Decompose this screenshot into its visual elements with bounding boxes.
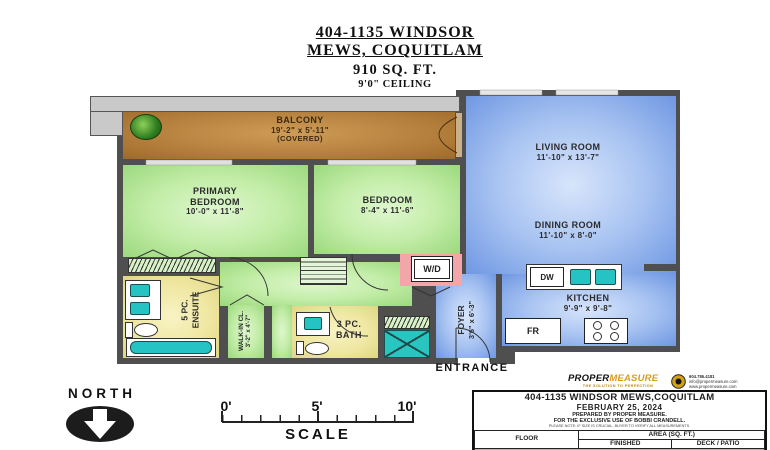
- primary-bedroom-name2: BEDROOM: [150, 197, 280, 208]
- scale-major-tick: [221, 411, 223, 422]
- bath-name-line2: BATH: [318, 330, 380, 341]
- bath-toilet-tank: [296, 341, 304, 355]
- ensuite-toilet-tank: [125, 322, 133, 338]
- walkin-closet-name: WALK-IN CL.: [238, 311, 246, 351]
- stove-burner: [610, 332, 619, 341]
- stove-burner: [610, 321, 619, 330]
- table-header-row: FLOOR AREA (SQ. FT.): [475, 430, 765, 439]
- title-address-line1: 404-1135 WINDSOR: [255, 24, 535, 42]
- living-room-name: LIVING ROOM: [478, 142, 658, 153]
- foyer-closet-bifold: [384, 330, 430, 358]
- scale-major-tick: [412, 411, 414, 422]
- compass-label: NORTH: [60, 386, 144, 401]
- kitchen-name: KITCHEN: [528, 293, 648, 304]
- ensuite-name-line2: ENSUITE: [190, 292, 201, 329]
- wall-stub-dining: [644, 264, 676, 271]
- logo-badge-icon: [671, 374, 686, 389]
- ensuite-name-line1: 5 PC.: [179, 292, 190, 329]
- room-hall-alcove: [272, 305, 292, 358]
- infobox-title: 404-1135 WINDSOR MEWS,COQUITLAM: [474, 392, 765, 403]
- logo-tagline: THE SOLUTION TO PERFECTION: [568, 384, 668, 388]
- primary-closet-hangers: [128, 258, 216, 273]
- scale-major-tick: [317, 411, 319, 422]
- plant-icon: [130, 114, 162, 140]
- title-ceiling: 9'0" CEILING: [255, 79, 535, 90]
- bath-label: 3 PC. BATH: [318, 319, 380, 340]
- kitchen-label: KITCHEN 9'-9" x 9'-8": [528, 293, 648, 313]
- balcony-name: BALCONY: [210, 115, 390, 126]
- infobox-date: FEBRUARY 25, 2024: [474, 403, 765, 412]
- logo-contact-block: 604.786.4181 info@propermeasure.com www.…: [689, 374, 737, 390]
- bath-toilet-bowl: [305, 342, 329, 355]
- infobox-disclaimer: PLEASE NOTE: IF SIZE IS CRUCIAL, BUYER T…: [474, 424, 765, 429]
- fridge-label: FR: [527, 326, 539, 336]
- bedroom-label: BEDROOM 8'-4" x 11'-6": [320, 195, 455, 215]
- foyer-closet-hangers: [384, 316, 430, 329]
- entrance-label: ENTRANCE: [420, 362, 524, 374]
- col-finished: FINISHED: [579, 439, 672, 448]
- dining-room-name: DINING ROOM: [478, 220, 658, 231]
- ensuite-toilet-bowl: [134, 323, 158, 337]
- stove: [584, 318, 628, 344]
- bedroom-name: BEDROOM: [320, 195, 455, 206]
- dining-room-dims: 11'-10" x 8'-0": [478, 231, 658, 240]
- primary-bedroom-dims: 10'-0" x 11'-8": [150, 207, 280, 216]
- stove-burner: [593, 321, 602, 330]
- linen-closet-shelves: [300, 257, 347, 285]
- bedroom-dims: 8'-4" x 11'-6": [320, 206, 455, 215]
- col-floor: FLOOR: [475, 430, 579, 448]
- kitchen-sink-2: [595, 269, 616, 285]
- floorplan-page: 404-1135 WINDSOR MEWS, COQUITLAM 910 SQ.…: [0, 0, 770, 450]
- foyer-dims: 3'6" x 6'-3": [467, 301, 476, 339]
- col-area: AREA (SQ. FT.): [579, 430, 765, 439]
- kitchen-sink-1: [570, 269, 591, 285]
- propermeasure-logo: PROPERMEASURE THE SOLUTION TO PERFECTION: [568, 374, 668, 388]
- ensuite-tub: [130, 341, 212, 354]
- scale-tick-0: 0': [214, 398, 238, 414]
- area-table: FLOOR AREA (SQ. FT.) FINISHED DECK / PAT…: [474, 430, 765, 450]
- ensuite-label: 5 PC. ENSUITE: [179, 292, 200, 329]
- foyer-label: FOYER 3'6" x 6'-3": [456, 301, 476, 339]
- north-arrow-icon: [64, 404, 136, 444]
- stove-burner: [593, 332, 602, 341]
- title-address-line2: MEWS, COQUITLAM: [255, 42, 535, 60]
- balcony-note: (COVERED): [210, 135, 390, 144]
- ensuite-sink-2: [130, 302, 150, 315]
- title-area: 910 SQ. FT.: [255, 62, 535, 79]
- fridge: FR: [505, 318, 561, 344]
- roofline-top: [90, 96, 460, 112]
- primary-bedroom-label: PRIMARY BEDROOM 10'-0" x 11'-8": [150, 186, 280, 217]
- foyer-name: FOYER: [456, 301, 467, 339]
- bath-name-line1: 3 PC.: [318, 319, 380, 330]
- logo-word-measure: MEASURE: [609, 373, 658, 384]
- plan-title: 404-1135 WINDSOR MEWS, COQUITLAM 910 SQ.…: [255, 24, 535, 90]
- logo-word-proper: PROPER: [568, 373, 609, 384]
- kitchen-dims: 9'-9" x 9'-8": [528, 304, 648, 313]
- washer-dryer-label: W/D: [423, 264, 441, 274]
- scale-label: SCALE: [268, 426, 368, 443]
- dining-room-label: DINING ROOM 11'-10" x 8'-0": [478, 220, 658, 240]
- ensuite-sink-1: [130, 284, 150, 297]
- room-living-dining: [466, 96, 676, 274]
- walkin-closet-label: WALK-IN CL. 3'-2" x 4'-7": [238, 311, 254, 351]
- dishwasher: DW: [530, 267, 564, 287]
- balcony-label: BALCONY 19'-2" x 5'-11" (COVERED): [210, 115, 390, 144]
- plan-info-box: 404-1135 WINDSOR MEWS,COQUITLAM FEBRUARY…: [472, 390, 767, 450]
- scale-tick-10: 10': [392, 398, 422, 414]
- living-room-label: LIVING ROOM 11'-10" x 13'-7": [478, 142, 658, 162]
- dishwasher-label: DW: [540, 273, 553, 282]
- propermeasure-logo-row: PROPERMEASURE THE SOLUTION TO PERFECTION…: [568, 374, 768, 390]
- walkin-closet-dims: 3'-2" x 4'-7": [246, 311, 254, 351]
- primary-bedroom-name1: PRIMARY: [150, 186, 280, 197]
- contact-website[interactable]: www.propermeasure.com: [689, 384, 737, 389]
- living-room-dims: 11'-10" x 13'-7": [478, 153, 658, 162]
- washer-dryer: W/D: [414, 259, 450, 279]
- col-deck-patio: DECK / PATIO: [672, 439, 765, 448]
